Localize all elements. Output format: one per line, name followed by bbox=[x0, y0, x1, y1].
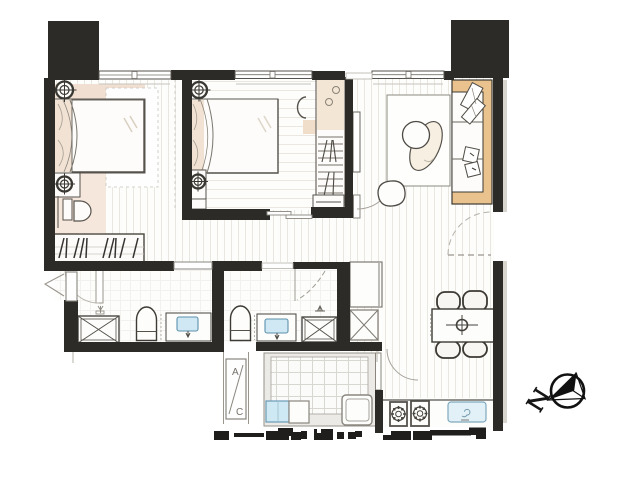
svg-text:C: C bbox=[236, 407, 243, 418]
svg-text:A: A bbox=[232, 367, 239, 378]
